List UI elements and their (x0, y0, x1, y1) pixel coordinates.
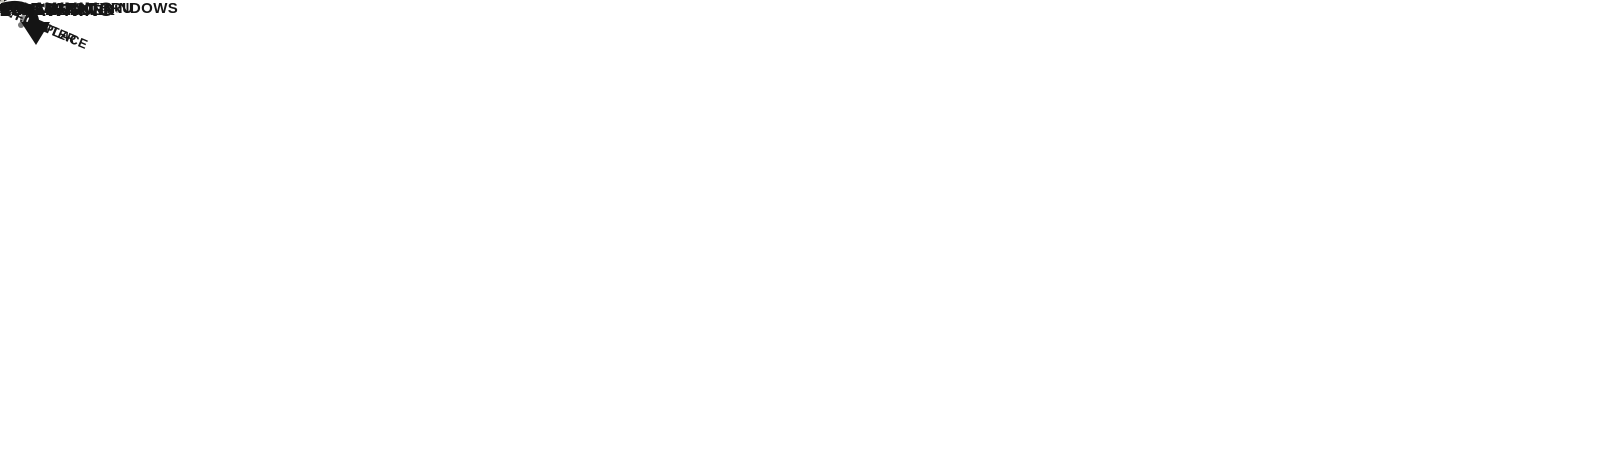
floorplan-canvas: PANORAMIC WINDOWS DINETTE VERSA-LOUNGE S… (0, 0, 1600, 461)
awning-label: 20’ AWNING (0, 0, 114, 22)
